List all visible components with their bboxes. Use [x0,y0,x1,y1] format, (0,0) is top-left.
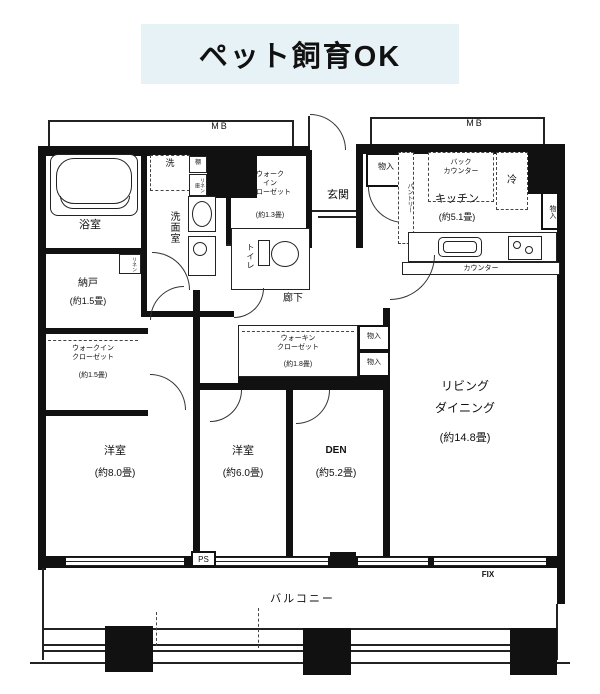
entrance-label: 玄関 [312,188,364,202]
bathtub-rim [60,196,130,209]
balcony-pillar-2 [303,628,351,675]
mb-outline-left-end2 [292,120,294,148]
balcony-divider-dash-2 [258,608,259,648]
linen-washroom-label: リネン庫 [192,176,204,194]
wic-west-size: (約1.5畳) [44,371,142,380]
kitchen-size: (約5.1畳) [412,212,502,224]
window-den [358,557,428,566]
storage-size: (約1.5畳) [54,296,122,308]
toilet-tank [258,240,270,266]
mb-outline-left-end [48,120,50,148]
mb-outline-right-end2 [543,117,545,146]
wic-center-dash [242,331,354,332]
wall-storage-bottom [38,328,148,334]
mb-label-left: MB [190,121,250,133]
closet-center-upper-label: 物入 [358,332,390,341]
pillar-top-right-b [527,144,557,194]
mb-label-right: MB [445,118,505,130]
wall-bedroom-west-right [193,290,200,556]
balcony-pillar-1 [105,626,153,672]
mb-outline-right-end [370,117,372,146]
back-counter-label: バック カウンター [428,158,494,176]
entrance-step-line-2 [318,216,356,218]
window-bedroom-center [214,557,328,566]
wic-center-label: ウォーキン クローゼット [246,334,350,352]
bath-label: 浴室 [60,218,120,232]
fridge-label: 冷 [498,174,526,187]
pantry-label: パントリー [400,158,412,238]
ps-label: PS [193,555,214,565]
storage-label: 納戸 [58,277,118,290]
toilet-bowl [271,241,299,267]
wic-entrance-label: ウォーク イン クローゼット [232,170,308,197]
mb-outline-left [48,120,294,122]
washroom-door-arc [150,286,184,320]
stove-burner-1 [513,241,521,249]
storage-door-arc [152,252,190,290]
ps-box: PS [191,551,216,567]
bedroom-west-label: 洋室 [79,444,151,458]
closet-center-lower-label: 物入 [358,358,390,367]
balcony-left-line [42,568,44,660]
bedroom-center-door-arc [210,390,242,422]
wall-wic-center-bottom [238,377,390,383]
bedroom-center-label: 洋室 [207,444,279,458]
balcony-divider-dash-1 [156,612,157,646]
fix-label: FIX [468,570,508,580]
shelf-label: 棚 [189,160,207,168]
wic-center-size: (約1.8畳) [246,360,350,369]
floorplan-page: ペット飼育OK MB MB FIX PS 浴室 洗 棚 [0,0,600,694]
balcony-label: バルコニー [260,592,345,606]
toilet-door-arc [234,288,264,318]
wic-west-label: ウォークイン クローゼット [44,344,142,362]
washroom-label: 洗面室 [164,200,178,255]
hallway-label: 廊下 [268,292,318,305]
bedroom-center-size: (約6.0畳) [203,467,283,480]
window-fix-living [434,557,546,566]
toilet-label: トイレ [242,234,254,278]
entrance-step-line [312,210,356,212]
wall-hall-bottom [200,383,390,390]
pillar-south-wall [330,552,356,568]
wall-bath-washroom [141,150,147,317]
banner-text: ペット飼育OK [199,33,402,75]
pets-ok-banner: ペット飼育OK [141,24,459,84]
den-door-arc [296,390,330,424]
living-size: (約14.8畳) [410,431,520,445]
wic-entrance-size: (約1.3畳) [232,211,308,220]
den-size: (約5.2畳) [296,467,376,480]
wall-wic-west-bottom [38,410,148,416]
bedroom-west-door-arc [150,374,186,410]
washer-label: 洗 [152,158,188,170]
living-label: リビング ダイニング [410,376,520,419]
den-label: DEN [300,444,372,457]
kitchen-label: キッチン [412,192,502,206]
entrance-door-arc [310,114,346,150]
linen-storage-label: リネン [124,256,136,273]
wic-west-dash [48,340,138,341]
stove-burner-2 [525,246,533,254]
vanity-sink-2 [193,242,207,256]
balcony-pillar-3 [510,628,557,675]
kitchen-sink-inner [443,241,477,253]
bedroom-west-size: (約8.0畳) [75,467,155,480]
vanity-sink [192,201,212,227]
living-door-arc [390,255,435,300]
closet-kitchen-side-label: 物入 [544,196,556,228]
wall-bedroom-den [286,390,293,556]
window-bedroom-west [66,557,184,566]
